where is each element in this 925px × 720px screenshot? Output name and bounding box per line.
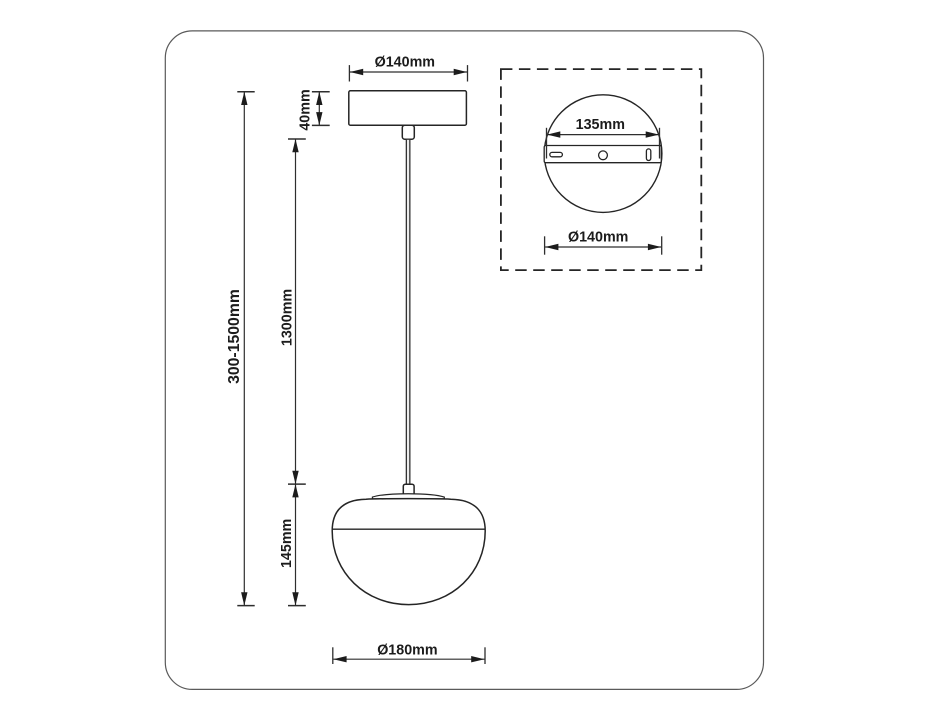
- svg-text:Ø140mm: Ø140mm: [568, 230, 628, 246]
- svg-text:1300mm: 1300mm: [280, 289, 296, 346]
- svg-text:40mm: 40mm: [298, 89, 314, 130]
- svg-text:Ø140mm: Ø140mm: [375, 55, 435, 71]
- svg-text:135mm: 135mm: [576, 117, 625, 133]
- svg-text:145mm: 145mm: [279, 519, 295, 568]
- svg-text:Ø180mm: Ø180mm: [377, 643, 437, 659]
- svg-text:300-1500mm: 300-1500mm: [226, 289, 243, 384]
